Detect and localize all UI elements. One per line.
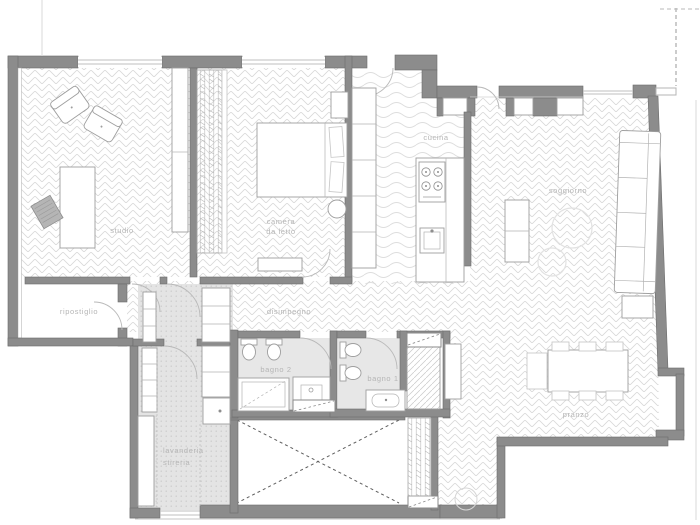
kitchen-cabinets — [352, 88, 376, 268]
wardrobe — [197, 70, 222, 253]
dining-chair-5 — [579, 391, 596, 400]
vestibule-cabinet-right — [202, 288, 230, 342]
wall-niche-3 — [557, 98, 583, 115]
dining-chair-3 — [606, 342, 623, 351]
hall-closet — [408, 418, 431, 496]
laundry-shelves-right — [202, 346, 230, 397]
studio-floor — [21, 68, 190, 277]
studio-bookcase — [172, 68, 188, 232]
wall-pillar-kitchen — [422, 70, 437, 98]
wall-bath1-top-1 — [337, 331, 366, 338]
bath2-shower — [238, 378, 289, 411]
wall-top-step-thin — [656, 88, 676, 95]
bed-bench — [258, 258, 302, 271]
wall-closet-east — [431, 413, 438, 510]
wall-studio-bedroom — [190, 68, 197, 277]
room-label-camera-line2: da letto — [266, 227, 295, 236]
wall-kitchen-living — [464, 112, 471, 266]
wall-laundry-west — [130, 346, 138, 518]
bath2-toilet — [241, 339, 257, 360]
wall-bottom-step — [497, 438, 505, 518]
dining-chair-1 — [552, 342, 569, 351]
floor-plan-page: studio camera da letto cucina soggiorno … — [0, 0, 700, 525]
duct-1 — [407, 333, 441, 347]
wall-bath1-shower — [400, 331, 407, 391]
bath1-shower — [407, 347, 440, 409]
dining-cabinet — [445, 344, 461, 399]
wall-niche-stub-4 — [533, 98, 557, 116]
duct-3 — [408, 496, 438, 508]
stove — [419, 162, 445, 202]
wall-bath2-top — [238, 331, 300, 338]
floor-plan-svg: studio camera da letto cucina soggiorno … — [0, 0, 700, 525]
dining-chair-6 — [606, 391, 623, 400]
wall-top-step-2 — [499, 86, 583, 98]
wall-niche-2 — [514, 98, 533, 115]
wall-top-2 — [162, 56, 242, 68]
wall-void-west — [230, 413, 238, 513]
wall-niche-1 — [443, 98, 467, 115]
wall-top-1 — [8, 56, 78, 68]
dining-table — [548, 350, 628, 392]
room-label-cucina: cucina — [423, 133, 449, 142]
dining-chair-2 — [579, 342, 596, 351]
dining-chair-4 — [552, 391, 569, 400]
wall-bottom-1 — [130, 508, 160, 518]
bath2-bidet — [266, 339, 282, 360]
wall-hall-top-1 — [25, 277, 130, 284]
bed-pillow-2 — [329, 162, 344, 193]
wall-bay-right — [676, 374, 684, 436]
room-label-camera-line1: camera — [267, 217, 296, 226]
wall-hall-top-2 — [200, 277, 303, 284]
nightstand — [331, 92, 348, 118]
wall-storage-bottom — [8, 338, 133, 346]
vestibule-cabinet-left — [143, 292, 156, 342]
room-label-pranzo: pranzo — [563, 410, 590, 419]
wall-bath2-west — [230, 330, 238, 418]
wall-hall-top-pillar — [160, 277, 167, 284]
room-label-studio: studio — [110, 226, 134, 235]
desk — [60, 167, 95, 248]
bath1-sink — [366, 390, 405, 411]
bath1-bidet — [340, 365, 361, 381]
window-studio — [78, 57, 162, 67]
room-label-soggiorno: soggiorno — [549, 186, 587, 195]
kitchen-sink — [420, 228, 444, 253]
bed-pillow-1 — [329, 127, 344, 158]
window-bedroom — [242, 57, 325, 67]
room-label-disimpegno: disimpegno — [267, 307, 311, 316]
laundry-tall-cabinet — [138, 416, 154, 506]
room-label-bagno1: bagno 1 — [367, 374, 398, 383]
sofa — [614, 130, 661, 293]
wall-west — [8, 56, 18, 346]
wall-hall-top-3 — [330, 277, 352, 284]
room-label-lavanderia-line1: lavanderia — [163, 446, 204, 455]
wall-storage-right-1 — [118, 284, 127, 302]
washing-machine — [203, 398, 230, 424]
wall-west-cavity — [18, 68, 22, 338]
wall-top-step-1 — [437, 86, 477, 98]
room-label-bagno2: bagno 2 — [260, 365, 291, 374]
wall-niche-stub-1 — [437, 98, 443, 116]
wall-bottom-3 — [440, 505, 502, 518]
room-label-lavanderia-line2: stireria — [163, 458, 191, 467]
bath1-toilet — [340, 342, 361, 358]
room-label-ripostiglio: ripostiglio — [60, 307, 98, 316]
wall-dining-bottom — [497, 437, 668, 446]
duct-2 — [293, 400, 335, 412]
sofa-side-table — [622, 296, 653, 318]
wardrobe-doors — [222, 70, 227, 253]
wall-top-kitchen — [395, 55, 437, 70]
wall-niche-stub-3 — [506, 98, 514, 116]
dining-bench — [527, 353, 547, 389]
bedroom-side-table — [328, 200, 346, 218]
